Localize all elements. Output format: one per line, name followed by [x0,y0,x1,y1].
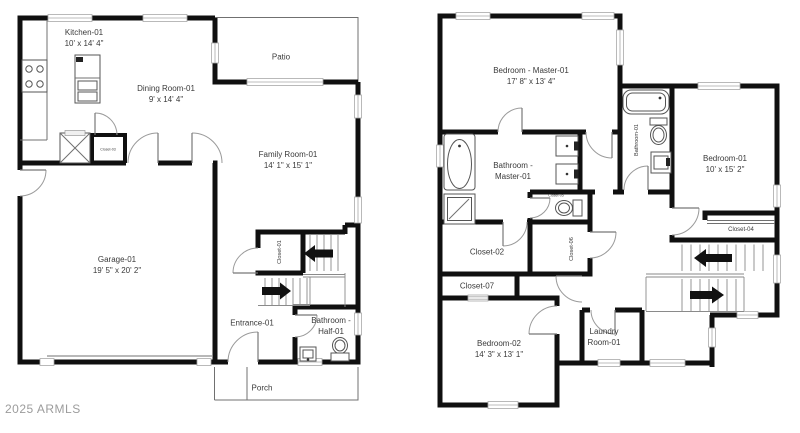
kitchen-label: Kitchen-01 10' x 14' 4" [65,28,104,50]
master-bath-label: Bathroom - Master-01 [493,161,533,183]
closet1-label: Closet-01 [276,240,283,264]
room-name: Kitchen-01 [65,28,104,39]
half-bath-sink-icon [300,347,316,361]
floor-plan-drawing [0,0,800,433]
first-floor-plan [18,15,362,401]
garage-label: Garage-01 19' 5" x 20' 2" [93,255,141,277]
room-name: Patio [272,53,290,64]
room-name: Family Room-01 [259,150,318,161]
laundry-room-label: Laundry Room-01 [588,327,621,349]
armls-watermark: 2025 ARMLS [5,402,81,416]
patio-outline [215,18,359,83]
closet5-label: Closet-05 [548,194,563,199]
room-name: Bathroom-01 [633,124,640,156]
room-dims: 14' 1" x 15' 1" [259,161,318,172]
room-name: Closet-02 [470,248,504,259]
stove-icon [22,60,47,92]
closet6-label: Closet-06 [568,237,575,261]
room-dims: 19' 5" x 20' 2" [93,266,141,277]
closet3-label: Closet-03 [100,148,115,153]
room-name: Laundry [588,327,621,338]
patio-label: Patio [272,53,290,64]
shower-icon [444,194,475,224]
room-dims: 10' x 15' 2" [703,165,747,176]
room-dims: 10' x 14' 4" [65,39,104,50]
room-name2: Room-01 [588,338,621,349]
bedroom1-label: Bedroom-01 10' x 15' 2" [703,154,747,176]
porch-outline [215,367,359,400]
entrance-label: Entrance-01 [230,319,274,330]
room-dims: 9' x 14' 4" [137,95,195,106]
first-floor-walls [18,16,361,365]
family-room-label: Family Room-01 14' 1" x 15' 1" [259,150,318,172]
room-name: Garage-01 [93,255,141,266]
room-name2: Half-01 [311,327,351,338]
room-name: Entrance-01 [230,319,274,330]
kitchen-island-icon [75,55,100,103]
half-bath-label: Bathroom - Half-01 [311,316,351,338]
room-name: Bedroom-01 [703,154,747,165]
master-sink-icons [556,136,579,184]
room-name: Dining Room-01 [137,84,195,95]
room-name: Closet-03 [100,148,115,153]
room-dims: 17' 8" x 13' 4" [493,77,569,88]
stairs-down-arrow-icon [690,287,724,304]
bedroom2-label: Bedroom-02 14' 3" x 13' 1" [475,339,523,361]
hall-bathtub-icon [623,90,669,114]
room-name: Closet-04 [728,226,754,234]
master-bathtub-icon [444,134,475,190]
room-name: Closet-06 [568,237,575,261]
room-name: Bedroom - Master-01 [493,66,569,77]
room-name2: Master-01 [493,172,533,183]
dining-room-label: Dining Room-01 9' x 14' 4" [137,84,195,106]
room-name: Bathroom - [311,316,351,327]
room-dims: 14' 3" x 13' 1" [475,350,523,361]
half-bath-toilet-icon [331,338,349,362]
closet7-label: Closet-07 [460,282,494,293]
master-bedroom-label: Bedroom - Master-01 17' 8" x 13' 4" [493,66,569,88]
hall-bathroom-label: Bathroom-01 [633,124,640,156]
hall-sink-icon [651,152,671,173]
water-closet-toilet-icon [556,200,583,216]
porch-label: Porch [252,384,273,395]
room-name: Bedroom-02 [475,339,523,350]
room-name: Closet-05 [548,194,563,199]
room-name: Closet-01 [276,240,283,264]
closet2-label: Closet-02 [470,248,504,259]
stairs-up-arrow-icon [304,245,333,262]
water-heater-icon [60,131,90,164]
floor-plan-image: Kitchen-01 10' x 14' 4" Dining Room-01 9… [0,0,800,433]
room-name: Bathroom - [493,161,533,172]
closet4-label: Closet-04 [728,226,754,234]
stairs-down-arrow-icon [262,283,291,300]
closet4-shelf-line [707,221,775,224]
room-name: Porch [252,384,273,395]
second-floor-stairs [646,245,763,312]
hall-toilet-icon [650,118,667,145]
room-name: Closet-07 [460,282,494,293]
